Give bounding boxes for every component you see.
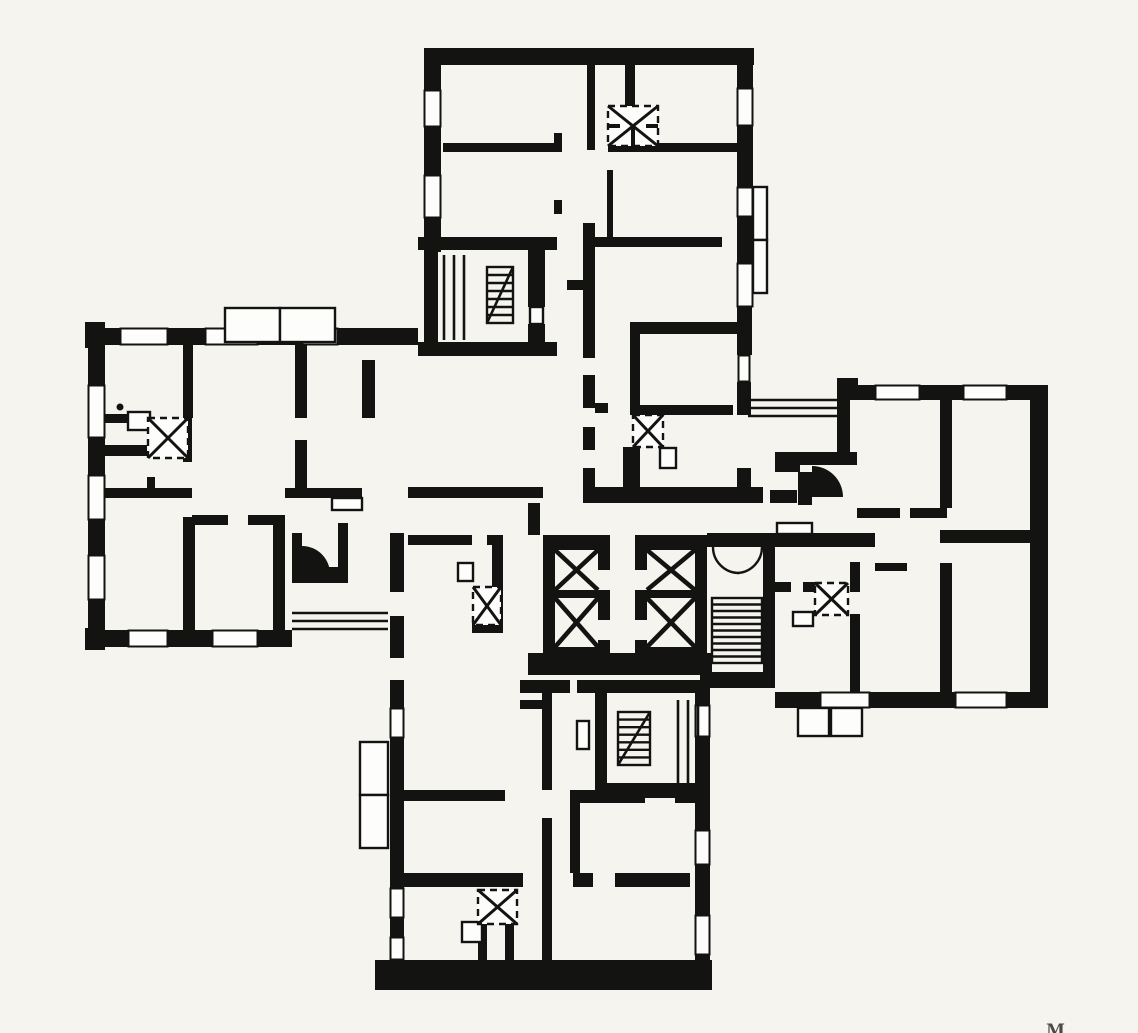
- wall-segment: [800, 452, 857, 465]
- wall-segment: [630, 334, 640, 408]
- balcony-box: [777, 523, 812, 534]
- wall-segment: [338, 523, 348, 567]
- wall-segment: [595, 693, 607, 783]
- balcony-box: [360, 795, 388, 848]
- wall-segment: [390, 680, 404, 708]
- wall-segment: [625, 65, 635, 108]
- elevator-cell: [647, 550, 695, 590]
- door-fan-filled: [812, 466, 843, 497]
- wall-segment: [1007, 692, 1048, 708]
- wall-segment: [635, 550, 647, 570]
- wall-segment: [598, 590, 610, 620]
- wall-segment: [583, 375, 595, 408]
- wall-segment: [528, 250, 545, 307]
- wall-segment: [487, 535, 503, 545]
- wall-segment: [635, 535, 707, 550]
- wall-segment: [292, 533, 302, 567]
- wall-segment: [737, 48, 753, 88]
- wall-segment: [763, 533, 775, 688]
- page-margin-mark: M: [1046, 1021, 1066, 1033]
- wall-segment: [88, 438, 105, 475]
- wall-segment: [635, 590, 647, 620]
- window-opening: [89, 556, 105, 600]
- window-opening: [696, 831, 710, 865]
- vent-shaft: [478, 890, 517, 924]
- wall-segment: [607, 170, 613, 237]
- wall-segment: [543, 535, 610, 550]
- wall-segment: [505, 924, 514, 963]
- wall-segment: [583, 427, 595, 450]
- wall-segment: [88, 520, 105, 555]
- wall-segment: [635, 640, 647, 647]
- window-opening: [738, 264, 753, 307]
- balcony-box: [128, 412, 150, 430]
- wall-segment: [940, 400, 952, 508]
- wall-segment: [583, 223, 595, 358]
- wall-segment: [573, 873, 593, 887]
- elevator-cell: [555, 550, 598, 590]
- wall-segment: [737, 217, 753, 263]
- window-opening: [964, 386, 1007, 400]
- wall-segment: [443, 143, 557, 152]
- wall-segment: [542, 680, 552, 790]
- balcony-box: [793, 612, 813, 626]
- wall-segment: [737, 468, 751, 487]
- wall-segment: [585, 237, 722, 247]
- wall-segment: [402, 790, 505, 801]
- wall-segment: [375, 960, 712, 990]
- wall-segment: [542, 818, 552, 963]
- wall-segment: [583, 468, 595, 487]
- wall-segment: [850, 614, 860, 692]
- wall-segment: [695, 550, 707, 647]
- wall-segment: [554, 133, 562, 152]
- wall-segment: [424, 127, 441, 175]
- wall-segment: [408, 487, 543, 498]
- wall-segment: [258, 630, 292, 647]
- wall-segment: [910, 508, 947, 518]
- wall-segment: [857, 508, 900, 518]
- wall-segment: [695, 865, 710, 915]
- wall-segment: [192, 515, 228, 525]
- vent-shaft: [473, 587, 501, 625]
- wall-segment: [390, 918, 404, 937]
- wall-segment: [598, 640, 610, 647]
- wall-segment: [418, 237, 557, 250]
- elevator-shafts-layer: [555, 550, 695, 647]
- wall-segment: [554, 200, 562, 214]
- wall-segment: [623, 447, 640, 488]
- wall-segment: [1007, 385, 1030, 400]
- wall-segment: [647, 590, 695, 598]
- wall-segment: [875, 563, 907, 571]
- door-fan-filled: [302, 546, 330, 574]
- window-opening: [213, 631, 258, 647]
- wall-segment: [88, 328, 120, 345]
- window-opening: [129, 631, 168, 647]
- balcony-box: [577, 721, 589, 749]
- wall-segment: [700, 672, 775, 688]
- window-opening: [876, 386, 920, 400]
- wall-segment: [543, 550, 555, 647]
- wall-segment: [424, 48, 441, 90]
- window-opening: [425, 176, 441, 218]
- wall-segment: [528, 653, 712, 675]
- wall-segment: [402, 873, 523, 887]
- balcony-box: [753, 240, 767, 293]
- window-opening: [391, 709, 404, 738]
- wall-segment: [390, 738, 404, 888]
- wall-segment: [577, 680, 710, 693]
- balcony-box: [280, 308, 335, 342]
- wall-segment: [595, 783, 710, 798]
- stair-run: [618, 712, 650, 765]
- vent-shaft: [815, 583, 848, 615]
- floor-plan-svg: [0, 0, 1138, 1033]
- wall-segment: [390, 533, 404, 592]
- wall-segment: [183, 517, 195, 630]
- wall-segment: [773, 582, 791, 592]
- wall-segment: [583, 487, 763, 503]
- wall-segment: [424, 250, 438, 342]
- wall-segment: [798, 472, 812, 505]
- vent-shaft: [148, 418, 188, 458]
- wall-segment: [630, 322, 743, 334]
- wall-segment: [295, 440, 307, 488]
- wall-segment: [408, 535, 472, 545]
- stair-run: [712, 598, 762, 663]
- wall-segment: [418, 342, 557, 356]
- balcony-box: [753, 187, 767, 240]
- wall-segment: [295, 345, 307, 418]
- wall-segment: [390, 616, 404, 658]
- balcony-box: [225, 308, 280, 342]
- wall-segment: [183, 345, 193, 418]
- wall-segment: [940, 563, 952, 692]
- wall-segment: [920, 385, 963, 400]
- dot-marker-layer: [117, 404, 124, 411]
- window-opening: [739, 356, 750, 382]
- wall-segment: [737, 382, 751, 415]
- door-swing-arc: [738, 547, 762, 573]
- wall-segment: [285, 488, 362, 498]
- vent-shaft: [633, 415, 663, 447]
- door-swing-arc: [713, 547, 739, 573]
- wall-segment: [105, 414, 128, 423]
- door-arcs-layer: [713, 547, 762, 573]
- wall-segment: [88, 345, 105, 385]
- wall-segment: [598, 550, 610, 570]
- window-opening: [89, 476, 105, 520]
- wall-segment: [273, 517, 285, 630]
- wall-segment: [630, 405, 733, 415]
- window-opening: [425, 91, 441, 127]
- dot-marker: [117, 404, 124, 411]
- balcony-box: [360, 742, 388, 795]
- wall-segment: [1030, 385, 1048, 708]
- balcony-box: [831, 708, 862, 736]
- balcony-box: [530, 307, 543, 324]
- walls-layer: [85, 48, 1048, 990]
- wall-segment: [567, 280, 585, 290]
- vent-shaft: [608, 106, 658, 150]
- elevator-cell: [555, 598, 598, 647]
- window-opening: [821, 693, 870, 708]
- stair-run: [487, 267, 513, 323]
- window-opening: [696, 916, 710, 955]
- balcony-box: [332, 498, 362, 510]
- scanned-floor-plan-page: M: [0, 0, 1138, 1033]
- balcony-box: [458, 563, 473, 581]
- wall-segment: [615, 873, 690, 887]
- balcony-box: [660, 448, 676, 468]
- wall-segment: [850, 385, 875, 400]
- wall-segment: [870, 692, 955, 708]
- balcony-box: [798, 708, 829, 736]
- window-opening: [738, 188, 753, 217]
- window-opening: [391, 889, 404, 918]
- wall-segment: [105, 488, 192, 498]
- wall-segment: [737, 126, 753, 187]
- wall-segment: [555, 590, 598, 598]
- wall-segment: [850, 562, 860, 592]
- wall-segment: [775, 452, 800, 472]
- wall-segment: [520, 700, 542, 709]
- wall-segment: [88, 630, 128, 647]
- window-opening: [391, 938, 404, 960]
- wall-segment: [528, 503, 540, 535]
- wall-segment: [338, 328, 418, 345]
- wall-segment: [528, 324, 545, 342]
- wall-segment: [587, 65, 595, 150]
- wall-segment: [595, 403, 608, 413]
- wall-segment: [105, 445, 147, 456]
- window-opening: [956, 693, 1007, 708]
- window-opening: [89, 386, 105, 438]
- elevator-cell: [647, 598, 695, 647]
- wall-segment: [775, 692, 820, 708]
- wall-segment: [770, 490, 797, 503]
- wall-segment: [362, 360, 375, 418]
- door-fans-layer: [302, 466, 843, 574]
- wall-segment: [940, 530, 1030, 543]
- wall-segment: [88, 600, 105, 630]
- wall-segment: [168, 328, 205, 345]
- window-opening: [738, 89, 753, 126]
- wall-segment: [424, 48, 754, 65]
- window-opening: [121, 329, 168, 345]
- wall-segment: [168, 630, 212, 647]
